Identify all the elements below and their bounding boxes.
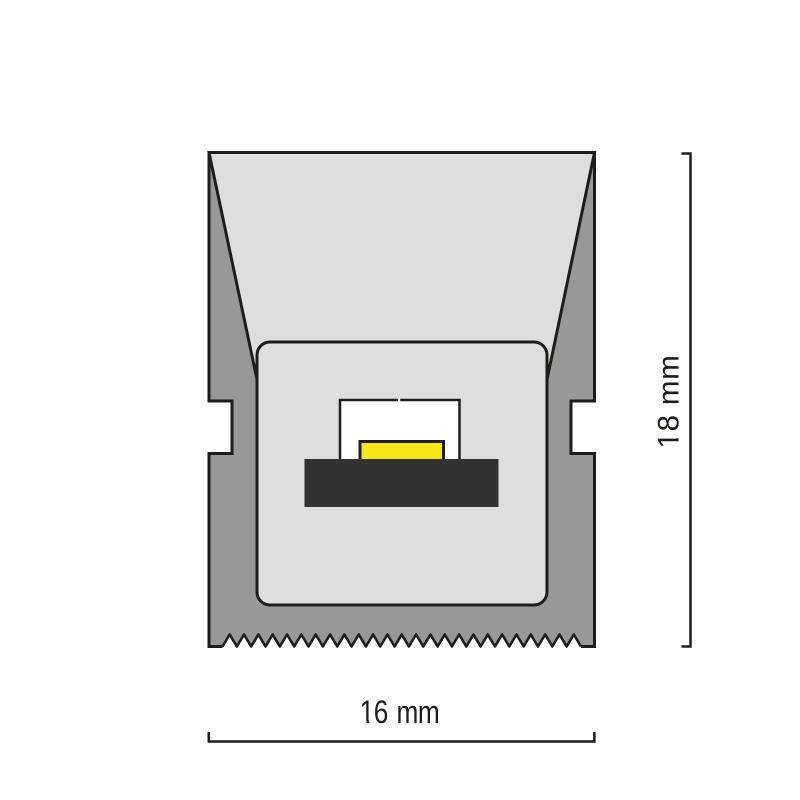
svg-text:16 mm: 16 mm bbox=[360, 695, 440, 730]
svg-text:18 mm: 18 mm bbox=[652, 354, 685, 448]
